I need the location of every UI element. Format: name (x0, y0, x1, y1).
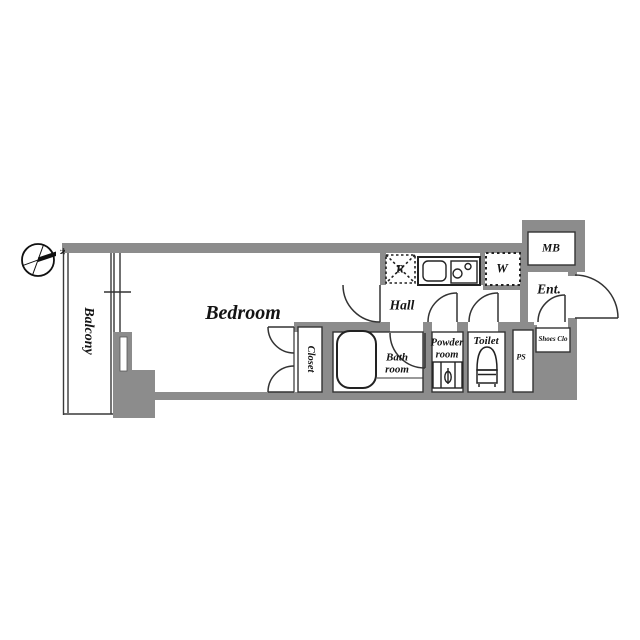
compass-rose-icon (22, 244, 56, 276)
mb-label: MB (542, 243, 560, 256)
ent-label: Ent. (537, 281, 561, 296)
wall-top (62, 243, 522, 253)
hall-label: Hall (390, 297, 415, 312)
entrance-inner-door-arc (538, 295, 565, 322)
powder-door-arc (428, 293, 457, 322)
wall-left-block (113, 370, 155, 418)
left-column-slot (120, 337, 127, 371)
bedroom-door-arc (343, 285, 380, 322)
floor-plan-canvas: N Balcony Bedroom Hall R W MB Ent. Close… (0, 0, 640, 640)
floor-plan-drawing (0, 0, 640, 640)
bathtub-icon (337, 331, 376, 388)
balcony-label: Balcony (80, 307, 96, 354)
toilet-door-arc (469, 293, 498, 322)
powder-label-line2: room (431, 349, 464, 361)
wall-closet-bath (322, 327, 333, 392)
kitchen-sink-icon (423, 261, 446, 281)
wall-bedroom-hall (380, 253, 386, 285)
sliding-window-icon (104, 253, 131, 332)
bedroom-label: Bedroom (205, 302, 281, 324)
washer-label: W (496, 262, 508, 277)
bath-label-line2: room (385, 364, 409, 376)
bath-label-line1: Bath (385, 352, 409, 364)
shoes-closet-label: Shoes Clo (539, 336, 568, 344)
wall-mb-right (575, 220, 585, 268)
bath-label: Bath room (385, 352, 409, 377)
closet-doors-arc (268, 327, 294, 392)
wall-toilet-ps (505, 330, 513, 392)
wall-bottom (150, 392, 577, 400)
powder-label-line1: Powder (431, 337, 464, 349)
powder-label: Powder room (431, 337, 464, 361)
entrance-door-arc (575, 275, 618, 318)
fridge-label: R (396, 262, 404, 275)
compass-north-label: N (57, 249, 65, 254)
wall-powder-toilet (463, 332, 468, 392)
walls (62, 220, 585, 418)
wall-hall-bottom-2 (457, 322, 468, 332)
toilet-label: Toilet (473, 335, 498, 347)
closet-label: Closet (304, 346, 316, 373)
ps-label: PS (516, 354, 525, 363)
wall-ent-left (520, 253, 528, 325)
